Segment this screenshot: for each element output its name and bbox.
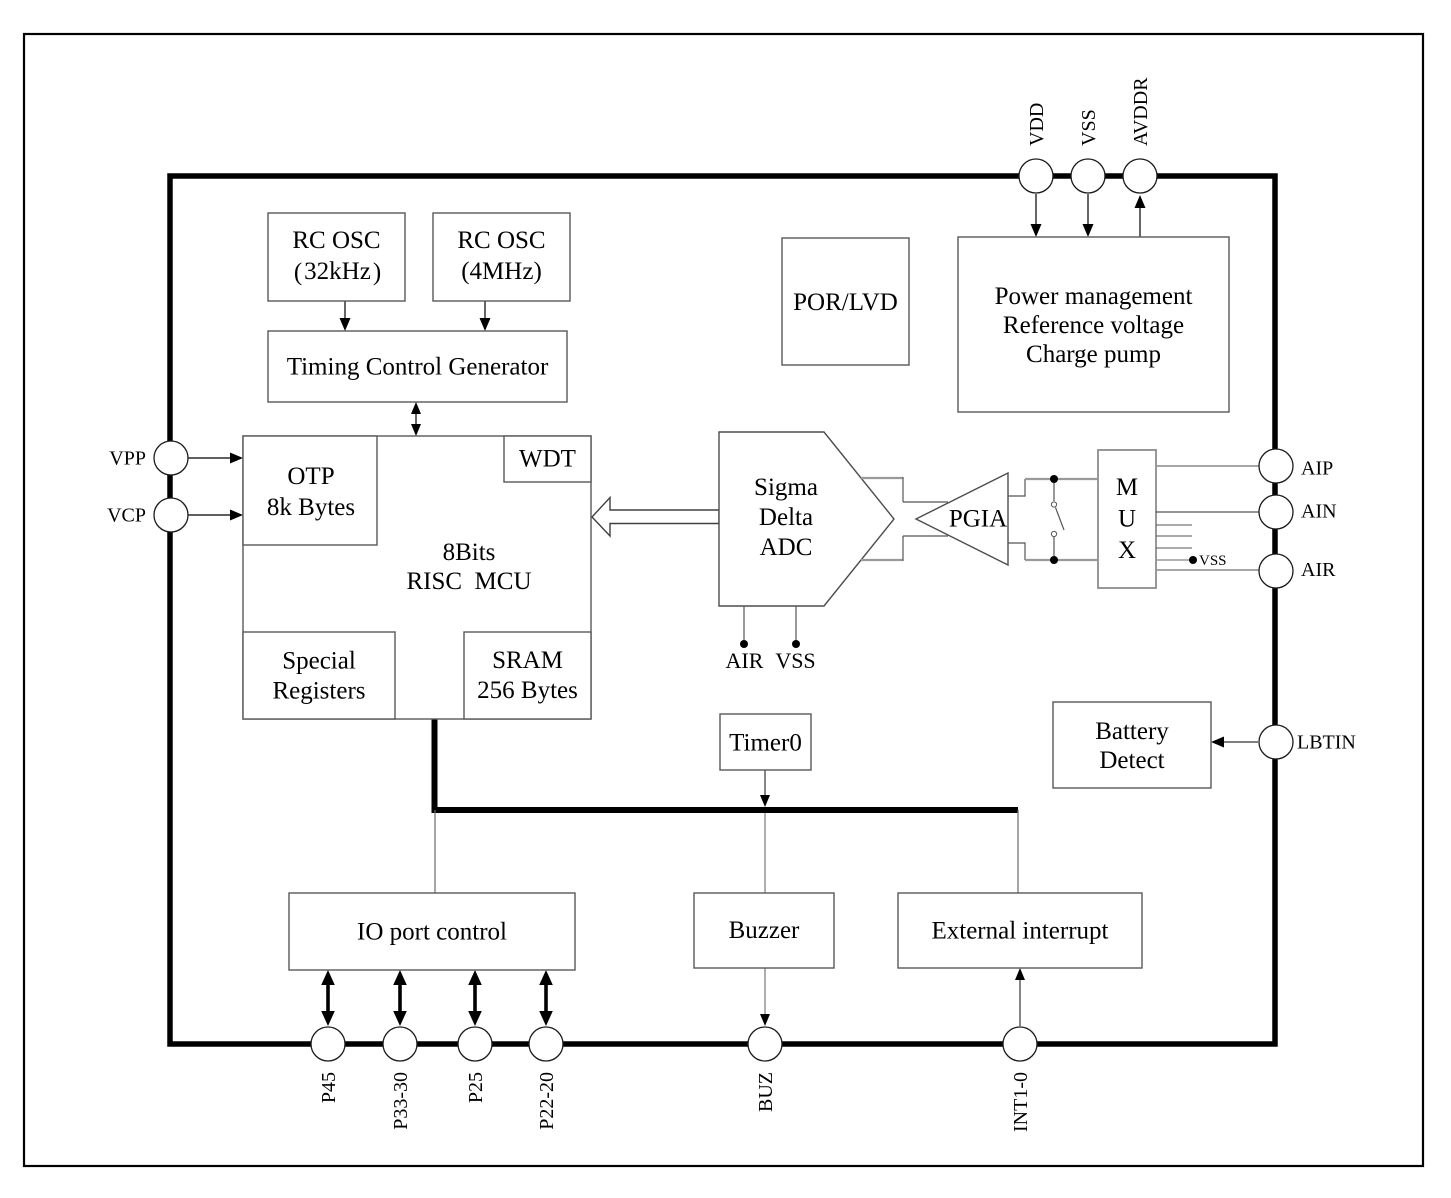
svg-text:RISC MCU: RISC MCU (406, 568, 531, 595)
svg-text:External interrupt: External interrupt (931, 918, 1108, 945)
svg-text:AIR: AIR (1301, 559, 1336, 581)
svg-text:IO port control: IO port control (357, 919, 507, 946)
svg-text:P25: P25 (465, 1072, 487, 1103)
svg-text:P22-20: P22-20 (536, 1072, 558, 1130)
svg-text:Sigma: Sigma (754, 474, 818, 501)
svg-text:Delta: Delta (759, 504, 813, 531)
svg-text:Timer0: Timer0 (729, 730, 802, 757)
svg-text:(: ( (294, 259, 302, 286)
svg-text:X: X (1118, 537, 1136, 564)
svg-text:Battery: Battery (1095, 718, 1169, 745)
svg-text:LBTIN: LBTIN (1297, 732, 1356, 754)
svg-text:VSS: VSS (1078, 109, 1100, 146)
svg-text:Power management: Power management (995, 283, 1193, 310)
svg-text:Timing Control Generator: Timing Control Generator (287, 354, 549, 381)
svg-text:WDT: WDT (519, 446, 576, 473)
svg-text:U: U (1118, 506, 1136, 533)
svg-text:VSS: VSS (775, 648, 815, 673)
svg-text:SRAM: SRAM (492, 647, 563, 674)
svg-text:AIN: AIN (1301, 501, 1337, 523)
svg-text:Reference voltage: Reference voltage (1003, 312, 1184, 339)
svg-text:): ) (373, 259, 381, 286)
svg-text:INT1-0: INT1-0 (1010, 1072, 1032, 1132)
svg-text:POR/LVD: POR/LVD (793, 289, 898, 316)
svg-text:256 Bytes: 256 Bytes (477, 677, 578, 704)
svg-text:AIR: AIR (726, 648, 764, 673)
svg-text:VPP: VPP (109, 448, 146, 470)
svg-text:RC OSC: RC OSC (292, 227, 380, 254)
svg-text:M: M (1116, 474, 1138, 501)
svg-text:AIP: AIP (1301, 458, 1333, 480)
svg-text:Charge pump: Charge pump (1026, 341, 1161, 368)
svg-text:(4MHz): (4MHz) (461, 258, 542, 285)
svg-text:Detect: Detect (1099, 747, 1164, 774)
svg-text:VSS: VSS (1199, 553, 1227, 569)
svg-text:RC OSC: RC OSC (457, 227, 545, 254)
svg-text:8k Bytes: 8k Bytes (267, 494, 355, 521)
svg-text:OTP: OTP (287, 463, 334, 490)
svg-text:VDD: VDD (1026, 103, 1048, 146)
svg-text:P33-30: P33-30 (390, 1072, 412, 1130)
svg-text:Buzzer: Buzzer (729, 917, 800, 944)
svg-text:BUZ: BUZ (755, 1072, 777, 1112)
svg-text:8Bits: 8Bits (443, 539, 496, 566)
svg-text:32kHz: 32kHz (304, 258, 371, 285)
svg-text:Registers: Registers (272, 678, 365, 705)
svg-text:PGIA: PGIA (949, 506, 1007, 533)
svg-text:VCP: VCP (107, 505, 146, 527)
svg-text:AVDDR: AVDDR (1130, 77, 1152, 146)
svg-text:ADC: ADC (760, 534, 813, 561)
svg-text:Special: Special (282, 648, 356, 675)
svg-text:P45: P45 (318, 1072, 340, 1103)
